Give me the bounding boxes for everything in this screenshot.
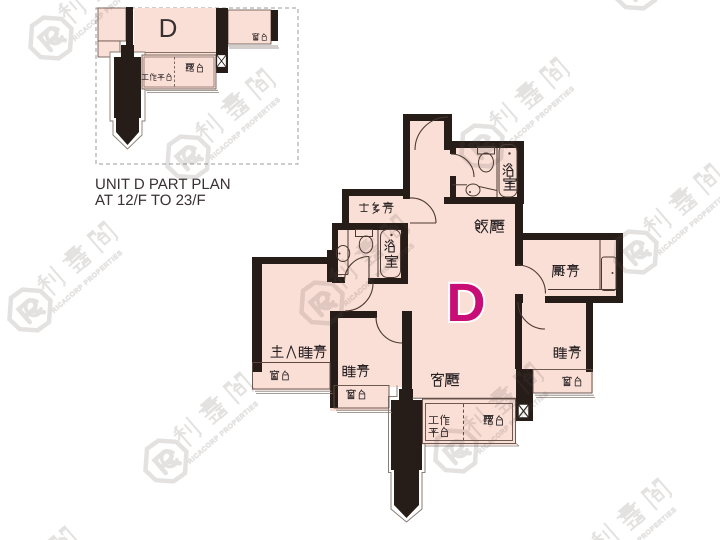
svg-text:D: D [159,13,178,43]
svg-text:D: D [447,273,486,333]
svg-text:AT 12/F TO 23/F: AT 12/F TO 23/F [95,192,206,209]
svg-text:UNIT D PART PLAN: UNIT D PART PLAN [95,176,231,193]
